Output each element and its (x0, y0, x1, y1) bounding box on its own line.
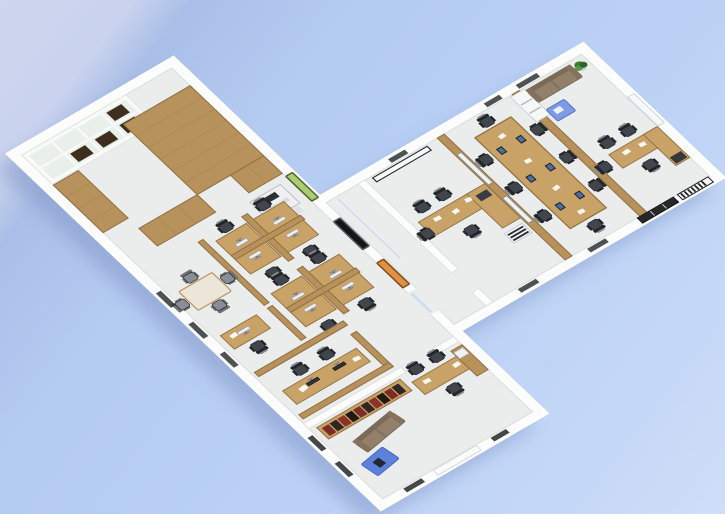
office-floorplan-3d-render (0, 0, 725, 514)
floorplan-canvas (0, 0, 725, 514)
floorplan (7, 0, 725, 510)
